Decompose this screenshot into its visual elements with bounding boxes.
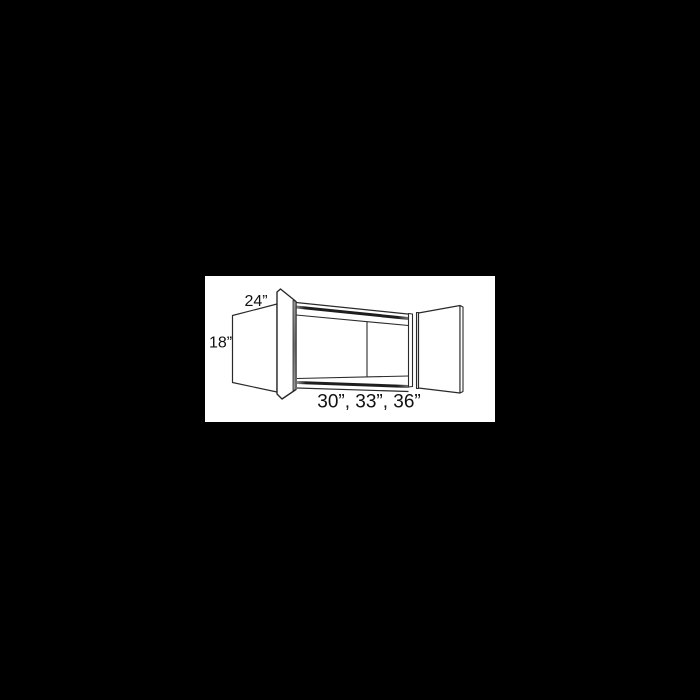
cabinet-top-rail <box>296 303 413 326</box>
diagram-plate: 24” 18” 30”, 33”, 36” <box>205 276 495 422</box>
dimension-label-widths: 30”, 33”, 36” <box>317 392 421 413</box>
cabinet-left-door-open <box>277 289 296 399</box>
cabinet-right-stile <box>409 314 413 388</box>
cabinet-right-door-open <box>419 306 464 394</box>
left-door-edge-face <box>293 301 296 391</box>
right-door-outer-edge <box>460 306 463 394</box>
dimension-label-height: 18” <box>209 335 232 352</box>
dimension-label-depth: 24” <box>244 293 267 310</box>
wall-cabinet-diagram: 24” 18” 30”, 33”, 36” <box>205 276 495 422</box>
bottom-rail-shade-band <box>297 381 409 388</box>
cabinet-left-side-panel <box>233 304 278 392</box>
black-background: 24” 18” 30”, 33”, 36” <box>0 0 700 700</box>
cabinet-bottom-rail <box>297 376 409 392</box>
